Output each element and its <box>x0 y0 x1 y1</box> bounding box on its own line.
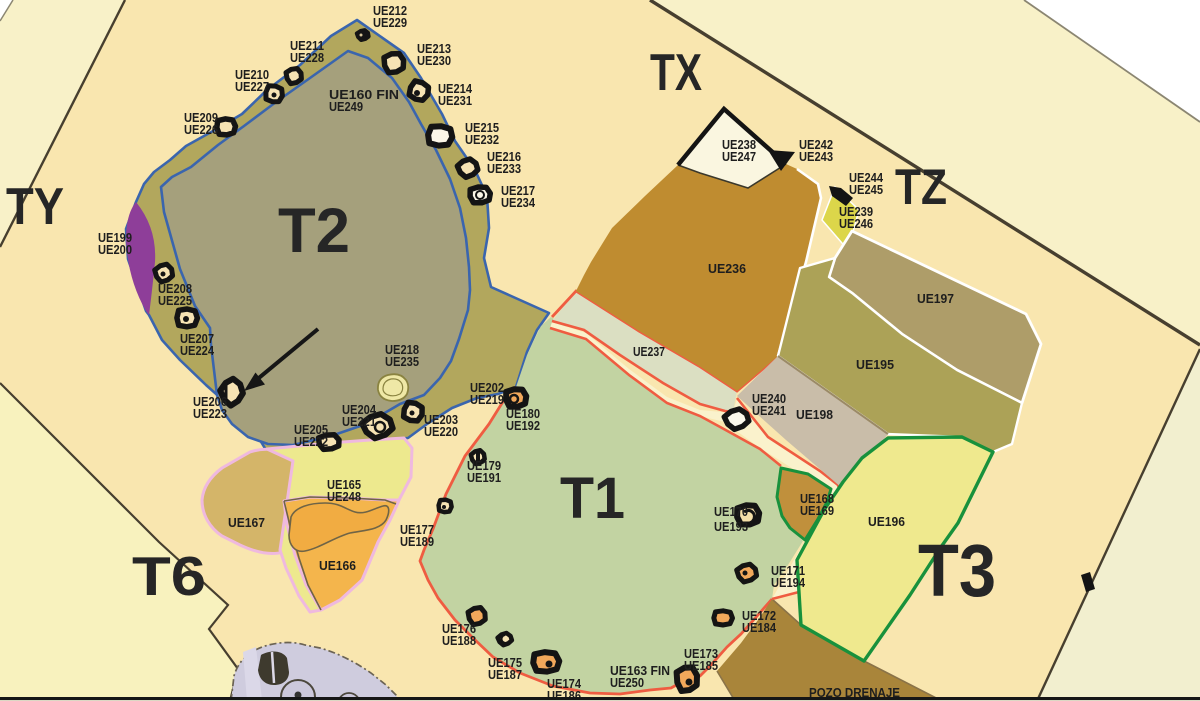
svg-text:UE250: UE250 <box>610 675 644 690</box>
svg-text:UE188: UE188 <box>442 633 476 648</box>
svg-text:UE200: UE200 <box>98 242 132 257</box>
svg-text:UE229: UE229 <box>373 15 407 30</box>
svg-text:UE219: UE219 <box>470 392 504 407</box>
svg-text:T2: T2 <box>278 196 350 266</box>
svg-text:UE166: UE166 <box>319 558 356 573</box>
svg-text:T1: T1 <box>560 466 625 531</box>
svg-text:UE187: UE187 <box>488 667 522 682</box>
svg-text:UE169: UE169 <box>800 503 834 518</box>
svg-text:UE223: UE223 <box>193 406 227 421</box>
svg-text:UE226: UE226 <box>184 122 218 137</box>
svg-text:TX: TX <box>650 44 702 102</box>
svg-text:UE193: UE193 <box>714 519 748 534</box>
svg-text:UE170: UE170 <box>714 504 748 519</box>
svg-text:UE237: UE237 <box>633 344 665 359</box>
svg-text:T6: T6 <box>132 545 206 607</box>
svg-text:UE246: UE246 <box>839 216 873 231</box>
svg-text:UE196: UE196 <box>868 514 905 529</box>
svg-text:UE235: UE235 <box>385 354 419 369</box>
svg-text:UE195: UE195 <box>856 357 894 372</box>
svg-text:UE225: UE225 <box>158 293 192 308</box>
svg-text:UE248: UE248 <box>327 489 361 504</box>
svg-text:UE184: UE184 <box>742 620 777 635</box>
svg-text:UE233: UE233 <box>487 161 521 176</box>
svg-text:UE191: UE191 <box>467 470 501 485</box>
svg-text:UE245: UE245 <box>849 182 883 197</box>
svg-text:UE232: UE232 <box>465 132 499 147</box>
svg-text:UE198: UE198 <box>796 407 833 422</box>
svg-text:TY: TY <box>6 178 64 236</box>
svg-text:UE167: UE167 <box>228 515 265 530</box>
svg-text:UE221: UE221 <box>342 414 376 429</box>
svg-text:T3: T3 <box>918 529 996 612</box>
svg-text:UE197: UE197 <box>917 291 954 306</box>
svg-text:UE189: UE189 <box>400 534 434 549</box>
svg-text:UE241: UE241 <box>752 403 786 418</box>
svg-text:UE249: UE249 <box>329 99 363 114</box>
svg-text:UE220: UE220 <box>424 424 458 439</box>
svg-text:UE236: UE236 <box>708 261 746 276</box>
svg-text:UE194: UE194 <box>771 575 806 590</box>
svg-text:UE185: UE185 <box>684 658 718 673</box>
svg-text:UE227: UE227 <box>235 79 269 94</box>
svg-text:UE230: UE230 <box>417 53 451 68</box>
svg-text:UE234: UE234 <box>501 195 536 210</box>
svg-text:UE224: UE224 <box>180 343 215 358</box>
svg-text:TZ: TZ <box>895 159 947 215</box>
svg-text:UE228: UE228 <box>290 50 324 65</box>
svg-text:UE243: UE243 <box>799 149 833 164</box>
svg-text:UE247: UE247 <box>722 149 756 164</box>
svg-text:UE231: UE231 <box>438 93 472 108</box>
svg-text:UE222: UE222 <box>294 434 328 449</box>
svg-text:UE192: UE192 <box>506 418 540 433</box>
